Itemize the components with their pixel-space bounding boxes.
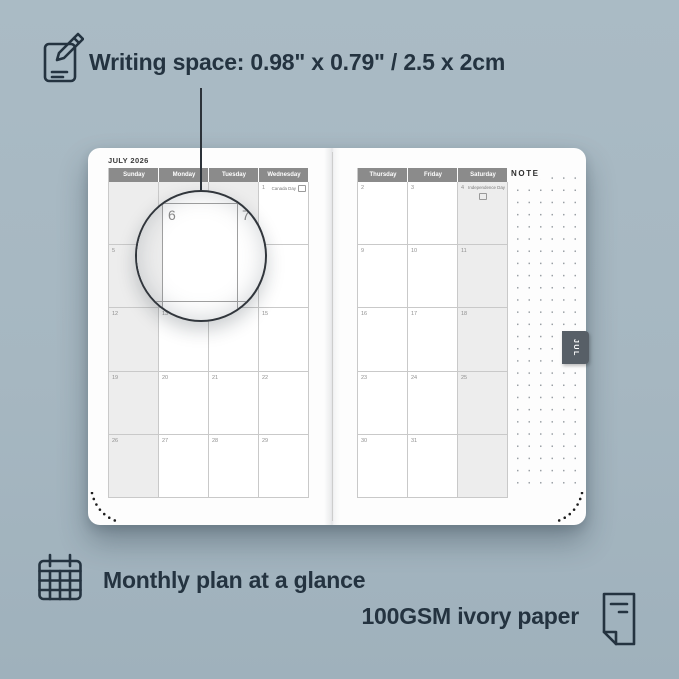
magnifier-circle: 6 7	[135, 190, 267, 322]
right-page: ThursdayFridaySaturday234Independence Da…	[337, 148, 586, 525]
holiday-label: Canada Day	[272, 186, 296, 191]
calendar-cell: 22	[259, 372, 309, 435]
day-header: Wednesday	[259, 168, 309, 182]
holiday-label: Independence Day	[468, 185, 505, 190]
calendar-cell: 27	[159, 435, 209, 498]
date-number: 20	[162, 375, 168, 381]
date-number: 21	[212, 375, 218, 381]
month-title: JULY 2026	[108, 156, 149, 165]
calendar-cell: 11	[458, 245, 508, 308]
book-spine-line	[332, 152, 333, 521]
calendar-cell: 2	[358, 182, 408, 245]
corner-dots-decoration	[88, 492, 124, 526]
calendar-cell: 17	[408, 308, 458, 371]
right-calendar-grid: ThursdayFridaySaturday234Independence Da…	[357, 168, 508, 498]
calendar-cell: 25	[458, 372, 508, 435]
calendar-cell: 18	[458, 308, 508, 371]
calendar-cell: 15	[259, 308, 309, 371]
date-number: 5	[112, 248, 115, 254]
date-number: 31	[411, 438, 417, 444]
month-tab-label: JUL	[572, 339, 579, 357]
product-image: Writing space: 0.98" x 0.79" / 2.5 x 2cm…	[0, 0, 679, 679]
calendar-cell: 1Canada Day	[259, 182, 309, 245]
day-header: Sunday	[109, 168, 159, 182]
calendar-cell: 31	[408, 435, 458, 498]
writing-space-label: Writing space: 0.98" x 0.79" / 2.5 x 2cm	[89, 49, 505, 76]
paper-spec-label: 100GSM ivory paper	[361, 603, 579, 630]
date-number: 17	[411, 311, 417, 317]
calendar-cell: 3	[408, 182, 458, 245]
date-number: 24	[411, 375, 417, 381]
date-number: 10	[411, 248, 417, 254]
calendar-cell: 23	[358, 372, 408, 435]
day-header: Tuesday	[209, 168, 259, 182]
note-dot-grid	[510, 168, 583, 486]
month-tab: JUL	[562, 331, 589, 364]
note-label: NOTE	[511, 169, 543, 179]
date-number: 29	[262, 438, 268, 444]
paper-icon	[596, 591, 642, 647]
calendar-cell: 20	[159, 372, 209, 435]
calendar-cell: 4Independence Day	[458, 182, 508, 245]
pencil-note-icon	[40, 31, 84, 85]
calendar-cell: 21	[209, 372, 259, 435]
date-number: 15	[262, 311, 268, 317]
day-header: Thursday	[358, 168, 408, 182]
calendar-cell: 16	[358, 308, 408, 371]
date-number: 3	[411, 185, 414, 191]
magnified-adjacent-date: 7	[242, 207, 250, 223]
corner-dots-decoration	[550, 492, 586, 526]
magnified-date: 6	[168, 207, 176, 223]
date-number: 16	[361, 311, 367, 317]
day-header: Saturday	[458, 168, 508, 182]
calendar-cell: 26	[109, 435, 159, 498]
calendar-cell: 19	[109, 372, 159, 435]
date-number: 27	[162, 438, 168, 444]
canada-flag-icon	[298, 185, 306, 192]
calendar-cell: 30	[358, 435, 408, 498]
date-number: 28	[212, 438, 218, 444]
date-number: 9	[361, 248, 364, 254]
calendar-cell	[458, 435, 508, 498]
date-number: 30	[361, 438, 367, 444]
calendar-cell: 24	[408, 372, 458, 435]
callout-connector-line	[200, 88, 202, 194]
calendar-cell: 10	[408, 245, 458, 308]
date-number: 11	[461, 248, 467, 254]
monthly-plan-label: Monthly plan at a glance	[103, 567, 365, 594]
us-flag-icon	[479, 193, 487, 200]
calendar-cell: 29	[259, 435, 309, 498]
date-number: 25	[461, 375, 467, 381]
date-number: 12	[112, 311, 118, 317]
date-number: 1	[262, 185, 265, 191]
date-number: 4	[461, 185, 464, 191]
day-header: Friday	[408, 168, 458, 182]
date-number: 19	[112, 375, 118, 381]
date-number: 23	[361, 375, 367, 381]
date-number: 2	[361, 185, 364, 191]
date-number: 18	[461, 311, 467, 317]
calendar-cell: 9	[358, 245, 408, 308]
date-number: 26	[112, 438, 118, 444]
date-number: 22	[262, 375, 268, 381]
calendar-grid-icon	[36, 553, 84, 603]
calendar-cell: 28	[209, 435, 259, 498]
